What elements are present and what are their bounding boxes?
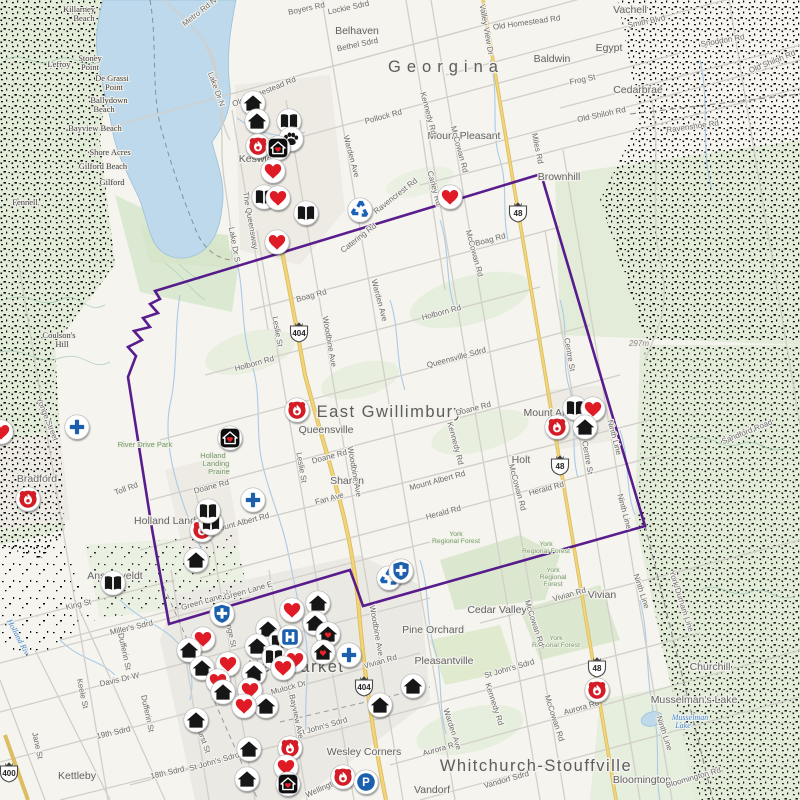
map-label: Vivian: [588, 589, 617, 601]
map-label: Wesley Corners: [327, 746, 402, 758]
map-marker-house-heart[interactable]: [311, 640, 335, 664]
map-label: Regional: [540, 574, 567, 581]
map-label: Queensville: [299, 424, 354, 436]
map-label: Baldwin: [534, 53, 571, 65]
map-marker-house[interactable]: [573, 415, 597, 439]
map-marker-hospital[interactable]: [278, 625, 302, 649]
map-marker-heart[interactable]: [266, 186, 290, 210]
map-marker-book[interactable]: [294, 201, 318, 225]
fire-icon: [334, 769, 351, 786]
map-marker-heart[interactable]: [438, 185, 462, 209]
map-label: York: [539, 541, 553, 548]
map-label: Forest: [543, 581, 562, 588]
fire-icon: [19, 491, 36, 508]
map-marker-heart[interactable]: [232, 694, 256, 718]
map-marker-fire[interactable]: [285, 398, 309, 422]
map-marker-house[interactable]: [211, 680, 235, 704]
map-marker-house[interactable]: [401, 674, 425, 698]
map-label: Kettleby: [58, 770, 97, 782]
map-marker-house[interactable]: [237, 737, 261, 761]
map-marker-heart[interactable]: [265, 230, 289, 254]
map-label: Regional Forest: [432, 538, 480, 545]
map-marker-fire[interactable]: [331, 765, 355, 789]
map-marker-fire[interactable]: [585, 678, 609, 702]
map-label: Point: [105, 82, 124, 92]
house-heart-black-icon: [269, 139, 288, 158]
map-label: York: [549, 635, 563, 642]
map-label: York: [449, 531, 463, 538]
map-marker-house-heart-black[interactable]: [266, 136, 290, 160]
map-marker-house[interactable]: [184, 548, 208, 572]
map-label: Gilford Beach: [79, 161, 128, 171]
hospital-icon: [282, 629, 298, 645]
map-label: Musselman's Lake: [651, 694, 738, 706]
map-label: Shore Acres: [89, 147, 130, 157]
svg-text:P: P: [362, 777, 370, 789]
map-marker-fire[interactable]: [16, 487, 40, 511]
fire-icon: [281, 740, 298, 757]
map-marker-house[interactable]: [245, 109, 269, 133]
map-marker-house[interactable]: [254, 694, 278, 718]
map-label: Pine Orchard: [402, 624, 464, 636]
map-viewport: GeorginaEast GwillimburyWhitchurch-Stouf…: [0, 0, 800, 800]
map-marker-cross-shield[interactable]: [210, 602, 234, 626]
map-marker-cross-circle[interactable]: [241, 488, 265, 512]
map-label: Vachell: [613, 4, 647, 16]
map-marker-book[interactable]: [101, 571, 125, 595]
map-label: River Drive Park: [118, 440, 173, 449]
fire-icon: [288, 402, 305, 419]
svg-text:48: 48: [556, 462, 565, 471]
map-label: Beach: [73, 13, 95, 23]
map-marker-cross-circle[interactable]: [337, 643, 361, 667]
map-marker-cross-circle[interactable]: [65, 415, 89, 439]
map-label: Whitchurch-Stouffville: [440, 757, 632, 775]
map-label: Belhaven: [335, 25, 379, 37]
map-label: Georgina: [388, 58, 504, 76]
map-label: Brownhill: [538, 171, 581, 183]
svg-text:400: 400: [2, 769, 16, 778]
map-label: East Gwillimbury: [317, 403, 464, 421]
map-marker-house-heart-black[interactable]: [276, 772, 300, 796]
map-label: Point: [81, 62, 100, 72]
map-marker-house[interactable]: [368, 693, 392, 717]
map-marker-house[interactable]: [235, 767, 259, 791]
map-marker-house-heart-black[interactable]: [218, 426, 242, 450]
map-marker-recycle[interactable]: [348, 198, 372, 222]
svg-text:48: 48: [514, 209, 523, 218]
map-label: Prairie: [208, 467, 230, 476]
map-marker-cross-shield[interactable]: [389, 559, 413, 583]
fire-icon: [249, 138, 266, 155]
map-label: Cedar Valley: [467, 604, 527, 616]
map-label: Egypt: [596, 42, 623, 54]
map-label: Regional Forest: [522, 548, 570, 555]
map-label: 297m: [628, 339, 649, 348]
parking-icon: P: [357, 773, 375, 791]
map-marker-heart[interactable]: [280, 598, 304, 622]
map-label: Bayview Beach: [68, 123, 122, 133]
map-marker-heart[interactable]: [261, 159, 285, 183]
svg-text:48: 48: [593, 664, 602, 673]
fire-icon: [588, 682, 605, 699]
map-marker-house[interactable]: [184, 708, 208, 732]
map-marker-fire[interactable]: [545, 415, 569, 439]
map-label: Bloomington: [613, 774, 672, 786]
map-marker-book[interactable]: [196, 499, 220, 523]
map-label: Gilford: [99, 177, 125, 187]
map-marker-heart[interactable]: [271, 656, 295, 680]
map-label: Lefroy: [47, 59, 71, 69]
map-label: Cedarbrae: [613, 84, 663, 96]
svg-text:404: 404: [292, 329, 306, 338]
map-label: York: [546, 567, 560, 574]
svg-text:404: 404: [357, 683, 371, 692]
map-label: Pleasantville: [415, 655, 474, 667]
house-heart-black-icon: [221, 429, 240, 448]
house-heart-black-icon: [279, 775, 298, 794]
map-label: Lake: [674, 721, 691, 730]
fire-icon: [548, 419, 565, 436]
map-label: Bradford: [17, 473, 57, 485]
map-label: Churchill: [690, 661, 731, 673]
map-label: Vandorf: [414, 784, 450, 796]
map-label: Fennell: [12, 197, 38, 207]
map-marker-parking[interactable]: P: [354, 770, 378, 794]
map-label: Hill: [55, 339, 69, 349]
map-canvas[interactable]: GeorginaEast GwillimburyWhitchurch-Stouf…: [0, 0, 800, 800]
map-label: Beach: [93, 104, 115, 114]
